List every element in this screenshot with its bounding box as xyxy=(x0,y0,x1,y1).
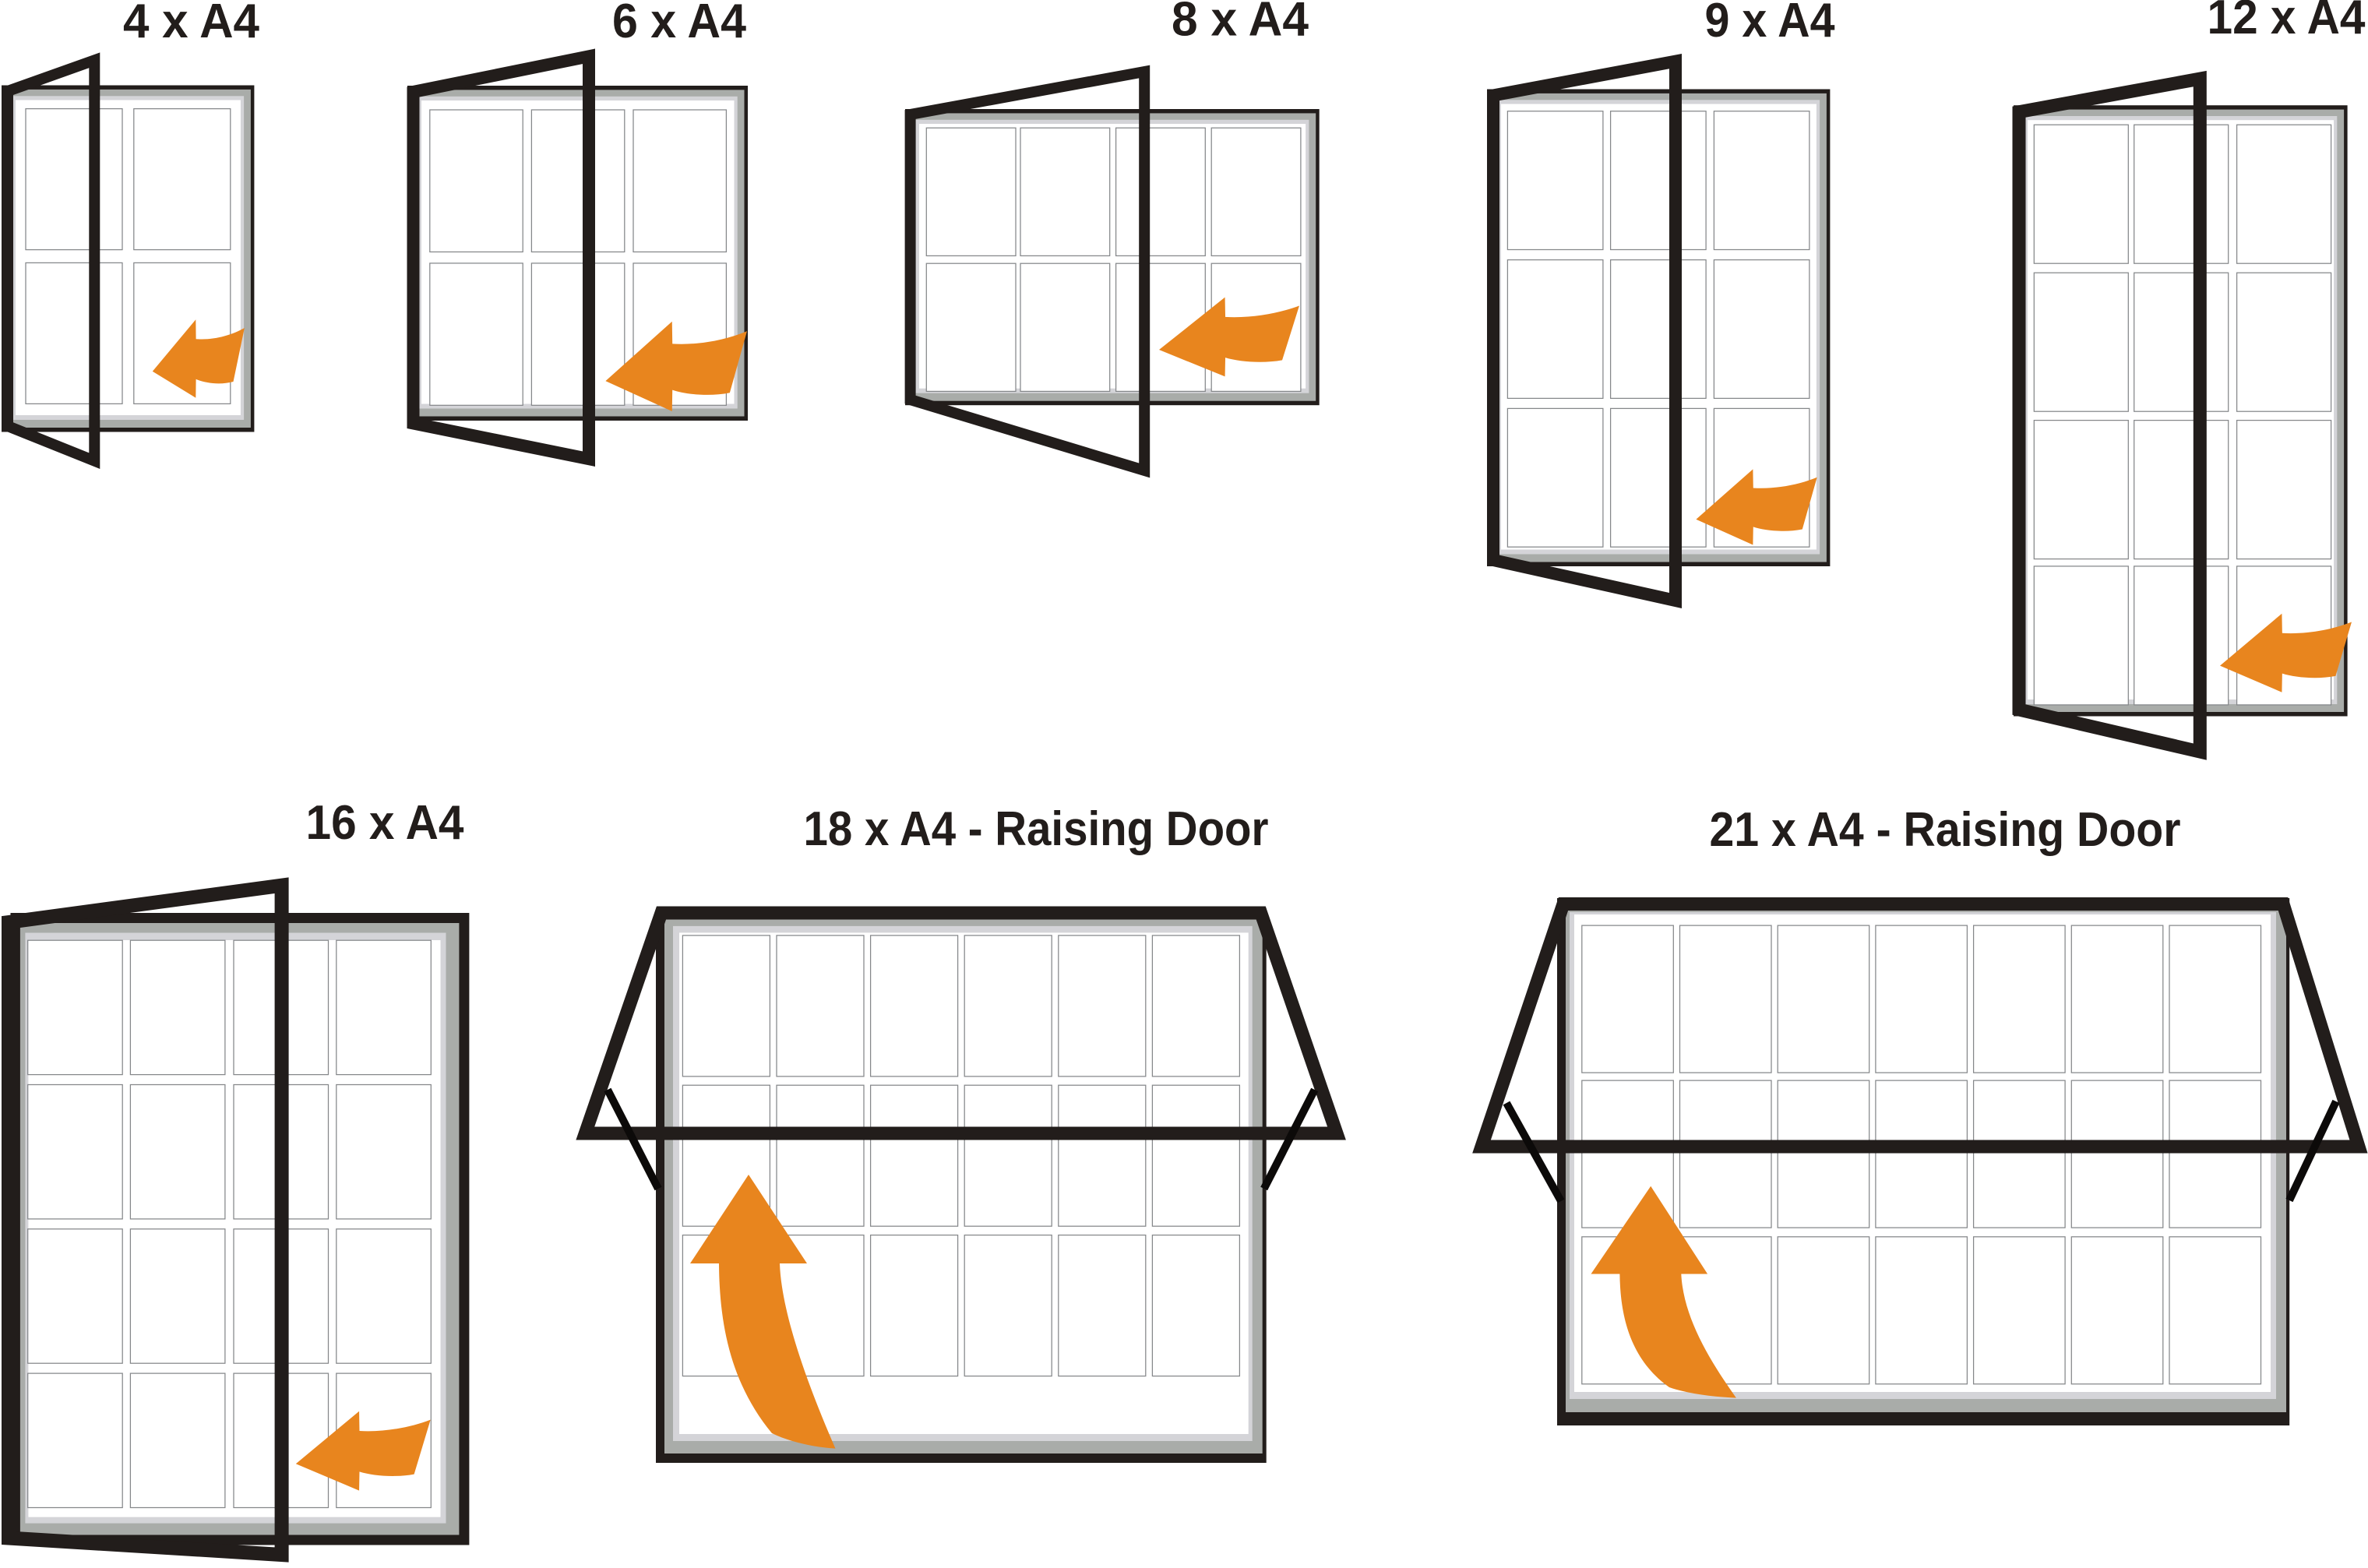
svg-text:8 x A4: 8 x A4 xyxy=(1172,0,1309,47)
svg-text:21 x A4 - Raising Door: 21 x A4 - Raising Door xyxy=(1710,803,2181,857)
svg-text:12 x A4: 12 x A4 xyxy=(2208,0,2366,44)
svg-text:18 x A4 - Raising Door: 18 x A4 - Raising Door xyxy=(804,802,1269,856)
svg-text:9 x A4: 9 x A4 xyxy=(1705,0,1835,48)
svg-text:4 x A4: 4 x A4 xyxy=(123,0,259,48)
svg-text:6 x A4: 6 x A4 xyxy=(612,0,746,48)
svg-text:16 x A4: 16 x A4 xyxy=(306,796,464,850)
